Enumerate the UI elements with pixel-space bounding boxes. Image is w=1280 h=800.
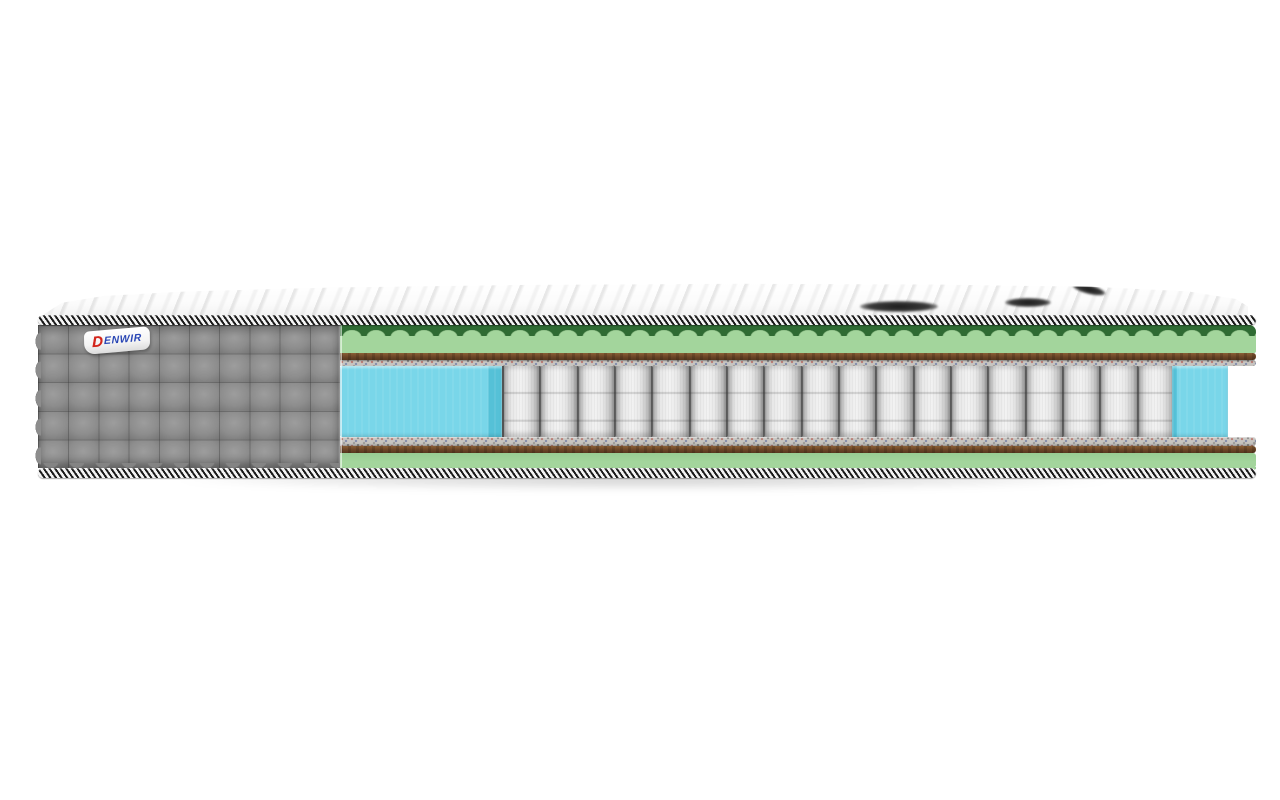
- edge-support-foam-left: [340, 366, 502, 437]
- pocket-spring: [840, 366, 877, 437]
- striped-piping-top: [38, 315, 1256, 325]
- top-print-mark: [860, 301, 938, 312]
- cover-edge-scallops: [33, 327, 41, 466]
- product-photo-scene: D ENWIR: [0, 0, 1280, 800]
- coir-layer-top: [340, 353, 1256, 360]
- pocket-spring: [1027, 366, 1064, 437]
- top-print-mark: [1005, 298, 1051, 307]
- pocket-spring: [1101, 366, 1138, 437]
- coir-layer-bottom: [340, 446, 1256, 453]
- brand-name-text: ENWIR: [104, 333, 142, 347]
- wavy-foam-layer-bottom: [340, 453, 1256, 468]
- wavy-foam-layer-top: [340, 325, 1256, 353]
- pocket-spring: [989, 366, 1026, 437]
- striped-piping-bottom: [38, 468, 1256, 478]
- mattress-cross-section: D ENWIR: [38, 283, 1256, 479]
- pocket-spring: [579, 366, 616, 437]
- cutaway-layer-stack: [340, 325, 1256, 468]
- pocket-spring: [691, 366, 728, 437]
- pocket-spring: [541, 366, 578, 437]
- pocket-spring: [1064, 366, 1101, 437]
- pocket-spring: [653, 366, 690, 437]
- pocket-spring: [616, 366, 653, 437]
- top-print-mark: [1071, 283, 1106, 298]
- pocket-springs: [502, 366, 1174, 437]
- pocket-spring: [504, 366, 541, 437]
- mattress-front-face: D ENWIR: [38, 325, 1256, 468]
- brand-label: D ENWIR: [84, 326, 150, 355]
- quilted-cover-panel: D ENWIR: [38, 325, 340, 468]
- pocket-spring: [877, 366, 914, 437]
- pocket-spring: [1139, 366, 1174, 437]
- pocket-spring: [915, 366, 952, 437]
- pocket-spring: [952, 366, 989, 437]
- pocket-spring-row: [340, 366, 1256, 437]
- brand-initial-letter: D: [92, 334, 103, 350]
- pocket-spring: [728, 366, 765, 437]
- edge-support-foam-right: [1172, 366, 1228, 437]
- pocket-spring: [803, 366, 840, 437]
- foam-wave-crests-top: [340, 325, 1256, 336]
- felt-pad-bottom: [340, 437, 1256, 446]
- pocket-spring: [765, 366, 802, 437]
